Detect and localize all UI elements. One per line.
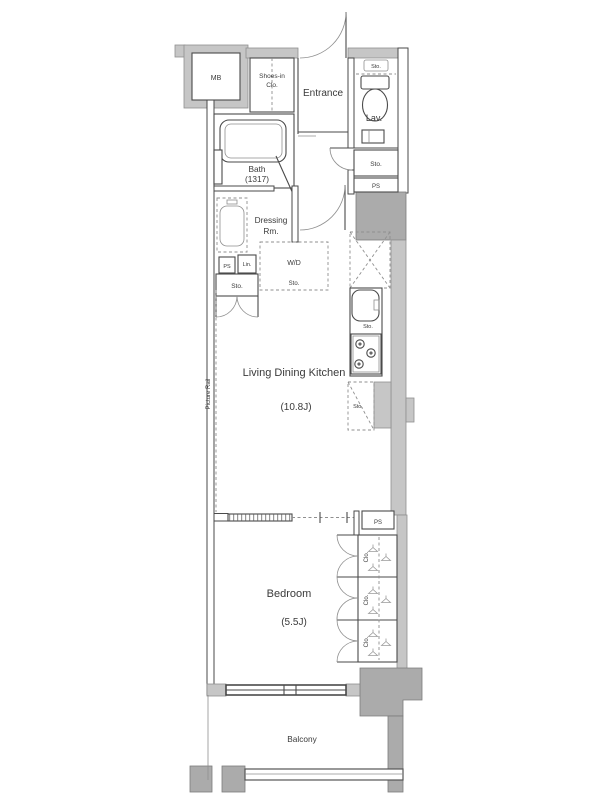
label-ldk: Living Dining Kitchen [243,367,346,379]
storage-left: Sto. [216,274,258,317]
sliding-door-track [214,511,359,535]
label-clo-1: Clo. [364,551,370,562]
ps-bedroom: PS [362,511,394,529]
entrance-door-arc [300,12,346,58]
label-dressing: Dressing [255,215,288,225]
label-ldk-size: (10.8J) [280,402,311,413]
washbasin-icon [217,198,247,252]
window-wall-stub-left [207,684,226,696]
window [226,685,346,695]
label-ps-bedroom: PS [374,520,382,526]
right-wall-upper [398,48,408,193]
label-lav-shelf-sto: Sto. [371,64,381,70]
label-bath: Bath [248,164,265,174]
bedroom: Bedroom (5.5J) [267,588,312,628]
storage-ps-right: Sto. PS [354,150,398,192]
label-lav: Lav. [366,113,382,123]
label-wd: W/D [287,260,301,267]
stove-icon [351,334,381,374]
label-sto-left: Sto. [231,283,243,290]
right-wall-mid [391,240,406,515]
balcony-railing [245,769,403,780]
kitchen-lower-storage: Sto. [348,382,374,430]
column-block-a [356,192,406,240]
label-balcony: Balcony [287,734,317,744]
label-clo-2: Clo. [364,594,370,605]
living-dining-kitchen: Living Dining Kitchen (10.8J) Picture Ra… [206,290,345,512]
label-kitchen-sto: Sto. [353,404,363,410]
label-ps-left: PS [223,264,231,270]
label-dressing-rm: Rm. [263,226,278,236]
floorplan-page: MB Shoes-in Clo. Entrance Sto. Lav. [0,0,600,800]
label-shoes-in: Shoes-in [259,73,285,80]
entrance: Entrance [298,12,354,194]
floorplan-svg: MB Shoes-in Clo. Entrance Sto. Lav. [0,0,600,800]
top-wall-left [246,48,298,58]
label-picture-rail: Picture Rail [206,379,212,410]
label-ps-right: PS [372,184,380,190]
pillar-left [190,766,212,792]
right-wall-bulge-in [374,382,391,428]
closet-door-arcs [337,535,358,662]
right-wall-bedroom [397,515,407,688]
mb-room: MB [192,53,240,100]
storage-door-arc [237,296,258,317]
bathtub-icon [220,120,286,162]
bathroom: Bath (1317) [214,114,294,196]
sink-icon [352,290,379,321]
storage-door-arc [216,296,237,317]
label-sink-sto: Sto. [363,324,373,330]
right-wall-bulge-out [406,398,414,422]
label-sto-right: Sto. [370,161,382,168]
dressing-room: Dressing Rm. PS Lin. W/D Sto. Sto. [214,186,328,317]
shoes-in-closet: Shoes-in Clo. [250,58,294,112]
hall-door-arc [300,185,345,230]
wall-stub-top-left [175,45,185,57]
label-mb: MB [211,75,222,82]
bath-counter [214,150,222,184]
bedroom-closet: Clo. Clo. Clo. [337,535,397,662]
label-entrance: Entrance [303,88,343,99]
lav-door-arc [330,148,352,170]
column-block-bottom-right [360,668,422,716]
label-lin: Lin. [243,262,252,268]
label-shoes-clo: Clo. [266,82,278,89]
lav-cabinet [362,130,384,143]
pillar-left-2 [222,766,245,792]
label-bedroom: Bedroom [267,588,312,600]
label-clo-3: Clo. [364,636,370,647]
label-bedroom-size: (5.5J) [281,617,307,628]
label-wd-sto: Sto. [289,281,300,287]
label-bath-size: (1317) [245,174,269,184]
